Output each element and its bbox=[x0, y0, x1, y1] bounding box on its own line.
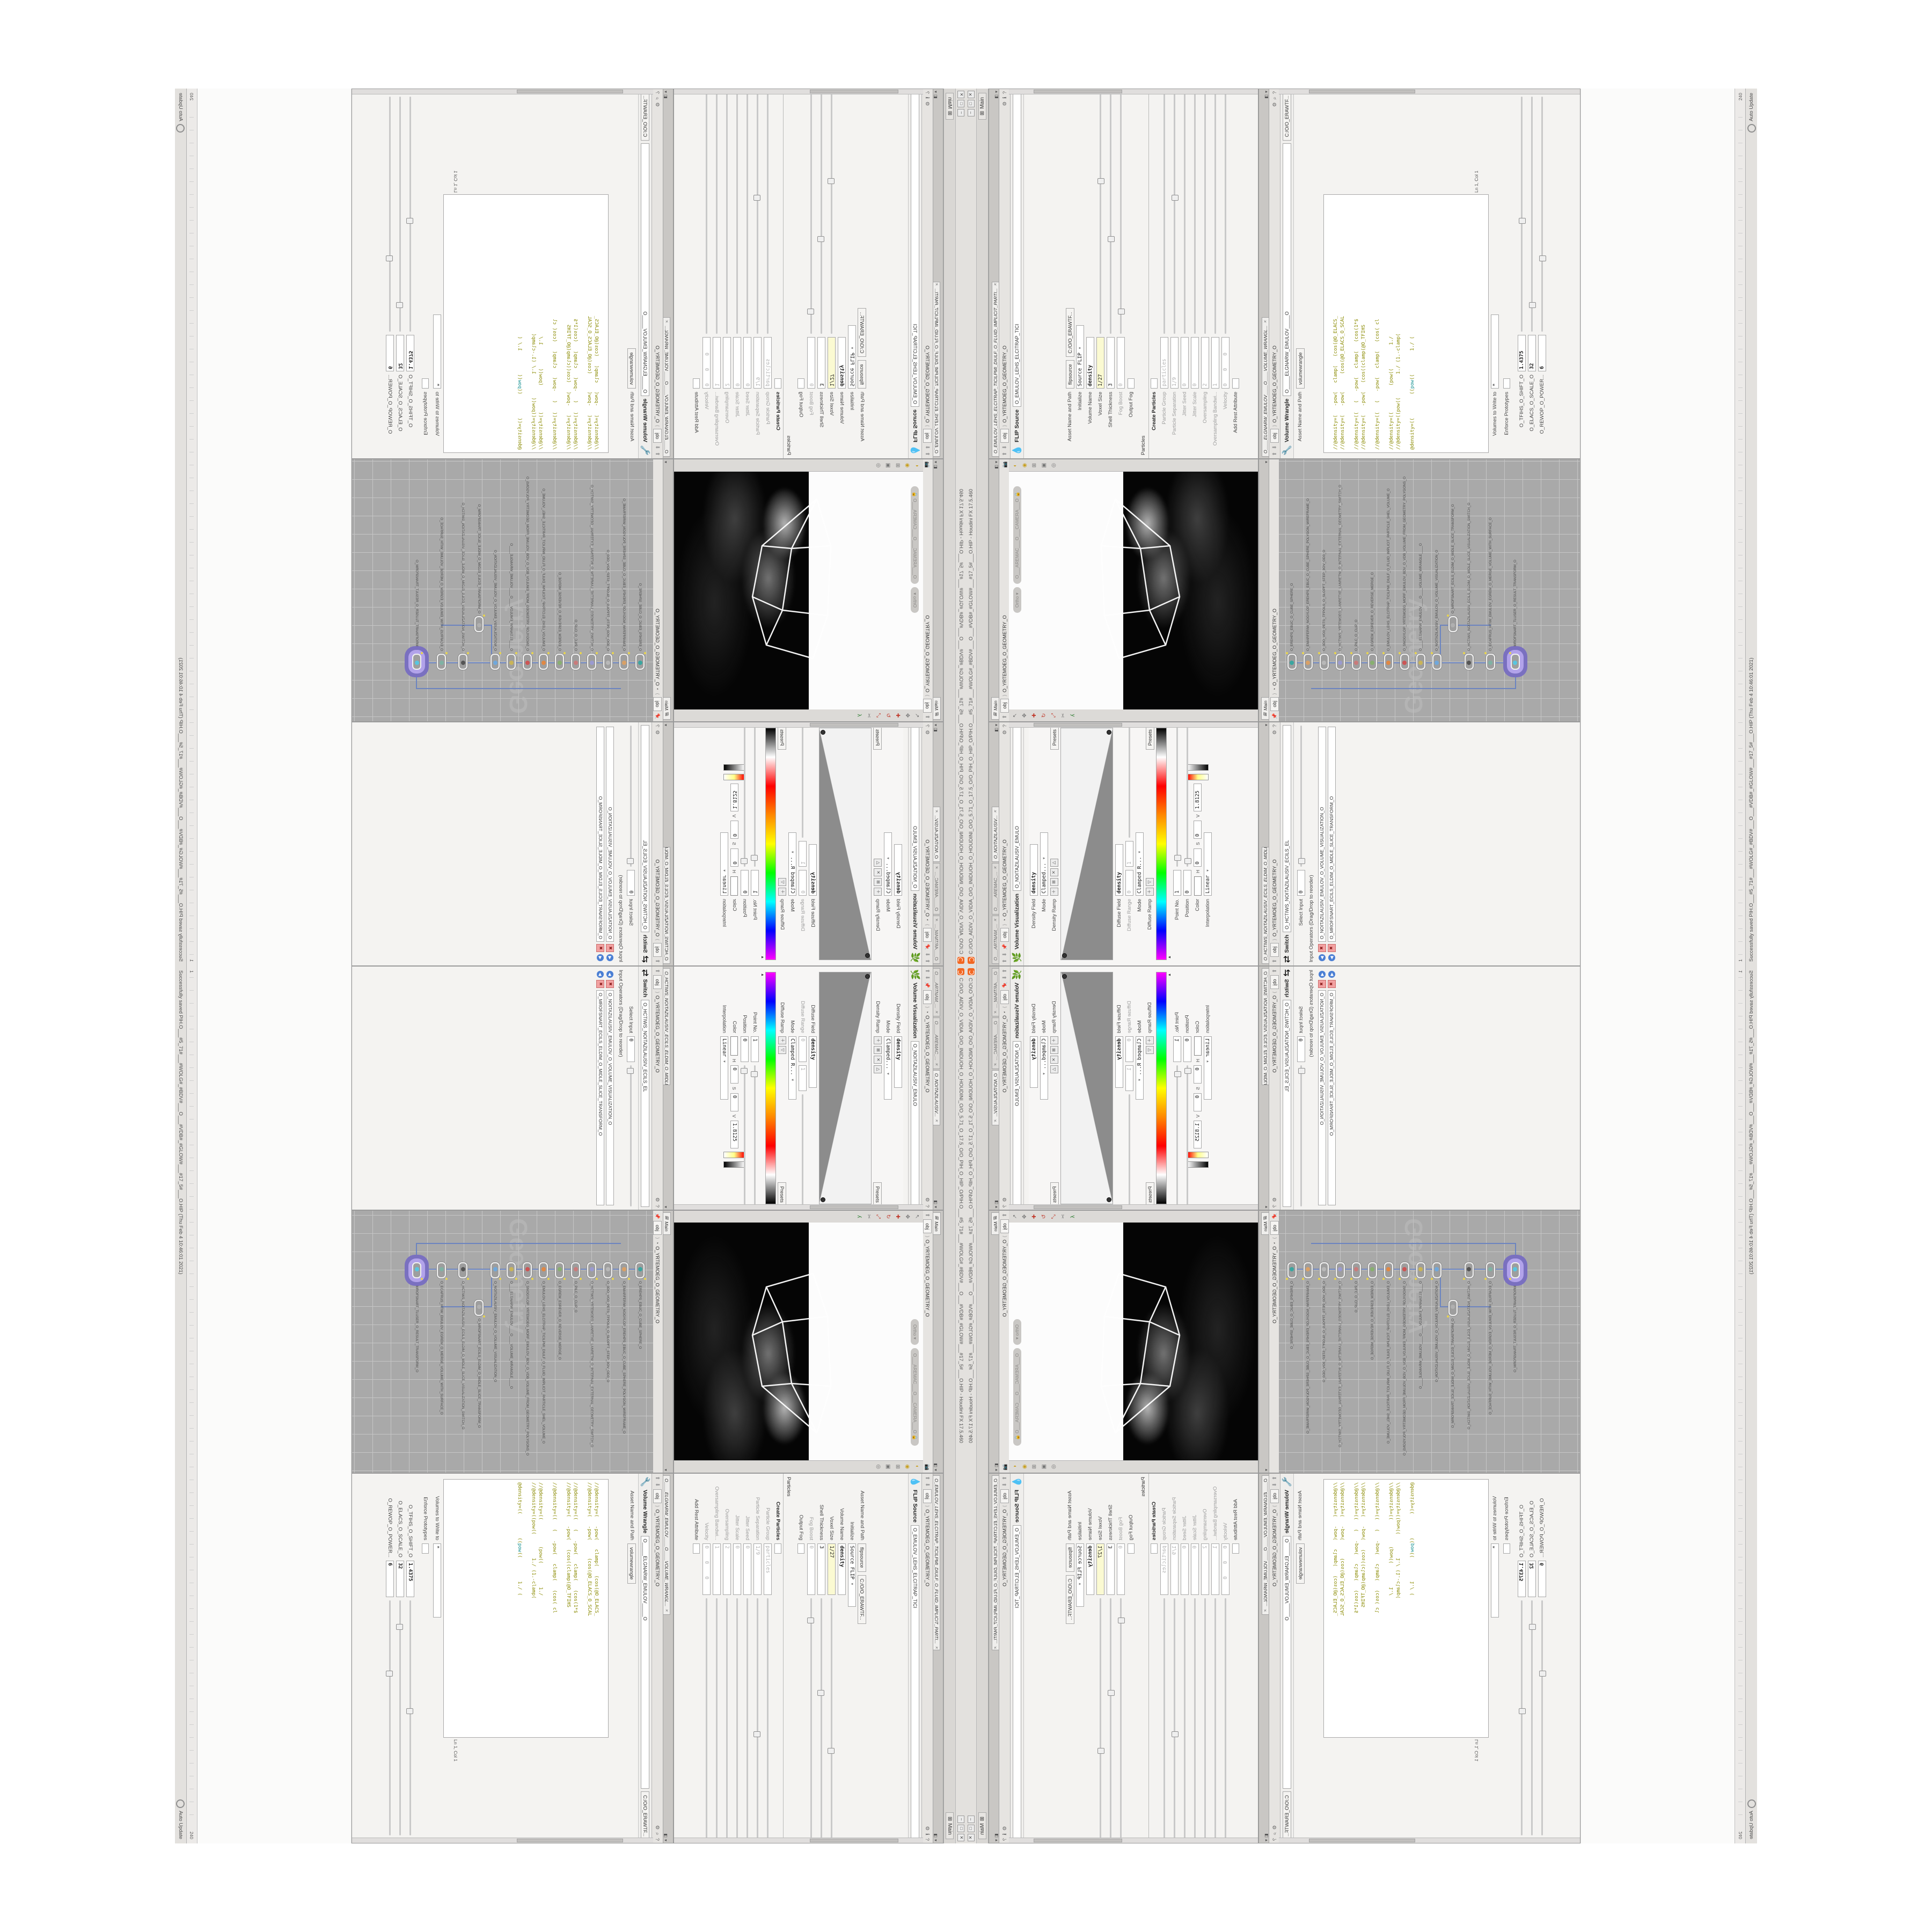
node-body[interactable] bbox=[1448, 1300, 1458, 1316]
nav-down-icon[interactable]: ⬇ bbox=[1002, 975, 1008, 979]
param-row[interactable]: Output Fog bbox=[1126, 1474, 1136, 1843]
color-swatch[interactable] bbox=[731, 1036, 738, 1056]
shading-icon[interactable]: ◐ bbox=[1012, 1465, 1018, 1468]
nav-up-icon[interactable]: ⬆ bbox=[1002, 715, 1008, 719]
update-mode-icon[interactable] bbox=[177, 124, 185, 133]
ramp-point-rail[interactable]: ▲ bbox=[1168, 728, 1172, 960]
diffuse-ramp-widget[interactable] bbox=[765, 728, 776, 960]
diffuse-range-min[interactable]: 0 bbox=[799, 870, 807, 896]
title-bar[interactable]: C:/O/O_AIDIV_O_VIDIA_O/O_INIDUOH_O_HOUDI… bbox=[966, 89, 977, 966]
input-operator-row[interactable]: ◀ ✖ O_NOITAZILAUSIV_EMULOV_O_VOLUME_VISU… bbox=[1318, 971, 1326, 1205]
value-strip[interactable] bbox=[724, 1161, 745, 1168]
vex-code-editor[interactable]: //@density=( -pow( clamp( (cos(@O_ELACS_… bbox=[1323, 194, 1489, 453]
network-node[interactable]: O_EGREM_ESREVER_O_REVERSE_MERGE_O bbox=[1368, 1262, 1377, 1360]
param-row[interactable]: InitializeSource FLIP bbox=[1075, 89, 1085, 458]
nav-down-icon[interactable]: ⬇ bbox=[1272, 445, 1278, 449]
ramp-point-handle[interactable] bbox=[865, 953, 870, 958]
info-icon[interactable]: ℹ bbox=[1002, 1833, 1008, 1835]
param-row[interactable]: Jitter Scale0 bbox=[1190, 1474, 1200, 1843]
help-icon[interactable]: ? bbox=[1002, 724, 1008, 727]
tab-mantra[interactable]: O___ARTNAM_...✕ bbox=[933, 916, 940, 964]
pin-icon[interactable]: 📌 bbox=[655, 713, 661, 719]
lighting-icon[interactable]: ◉ bbox=[904, 1465, 910, 1469]
pane-menu-icon[interactable]: ▾ bbox=[933, 724, 938, 726]
close-icon[interactable]: ✕ bbox=[934, 283, 939, 286]
position-input[interactable]: 0 bbox=[1183, 1036, 1191, 1062]
path-root-chip[interactable]: obj bbox=[653, 697, 662, 711]
tab-mantra[interactable]: O___ARTNAM_...✕ bbox=[933, 968, 940, 1016]
snap-tool-icon[interactable]: ✂ bbox=[1060, 1214, 1066, 1219]
scale-tool-icon[interactable]: ⤢ bbox=[875, 713, 881, 718]
timeline-ticks[interactable] bbox=[190, 105, 194, 955]
delete-input-icon[interactable]: ✖ bbox=[606, 980, 614, 988]
title-bar[interactable]: C:/O/O_AIDIV_O_VIDIA_O/O_INIDUOH_O_HOUDI… bbox=[955, 89, 966, 966]
pin-icon[interactable]: 📌 bbox=[1002, 944, 1008, 950]
node-body[interactable] bbox=[1336, 654, 1345, 670]
asset-chip[interactable]: flipsource bbox=[1066, 1543, 1074, 1572]
node-body[interactable] bbox=[412, 1262, 421, 1278]
param-row[interactable]: InitializeSource FLIP bbox=[1075, 1474, 1085, 1843]
pane-menu-icon[interactable]: ▾ bbox=[933, 1469, 938, 1471]
gear-icon[interactable]: ⚙ bbox=[655, 1825, 661, 1830]
hand-tool-icon[interactable]: ✥ bbox=[904, 713, 910, 718]
node-body[interactable] bbox=[1320, 654, 1329, 670]
node-flag-icon[interactable] bbox=[547, 652, 550, 654]
param-row[interactable]: Velocity0 0 0 bbox=[1220, 89, 1231, 458]
diffuse-field-input[interactable]: density bbox=[809, 1036, 817, 1088]
delete-input-icon[interactable]: ✖ bbox=[596, 944, 604, 952]
param-row[interactable]: Voxel Size1/27 bbox=[1095, 1474, 1106, 1843]
node-flag-icon[interactable] bbox=[563, 652, 566, 654]
minimize-button[interactable]: – bbox=[968, 109, 975, 116]
asset-path-chip[interactable]: C:/O/O_ERAWTF... bbox=[858, 1575, 867, 1624]
rotate-tool-icon[interactable]: ↻ bbox=[1041, 1214, 1047, 1219]
node-body[interactable] bbox=[603, 654, 612, 670]
help-icon[interactable]: ? bbox=[655, 1838, 661, 1841]
ramp-flip-icon[interactable]: ▽ bbox=[778, 878, 786, 886]
display-options-icon[interactable]: ◎ bbox=[1051, 1465, 1057, 1469]
ramp-add-icon[interactable]: ＋ bbox=[874, 1036, 882, 1044]
node-name-field[interactable]: O_NOITAZILAUSIV_EMULO bbox=[911, 725, 919, 891]
node-flag-icon[interactable] bbox=[515, 652, 517, 654]
param-row[interactable]: InitializeSource FLIP bbox=[847, 89, 857, 458]
node-flag-icon[interactable] bbox=[1431, 652, 1433, 654]
ramp-delete-icon[interactable]: ✕ bbox=[1050, 1056, 1058, 1064]
node-flag-icon[interactable] bbox=[644, 652, 646, 654]
param-row[interactable]: Particles bbox=[783, 89, 794, 458]
position-input[interactable]: 0 bbox=[741, 870, 749, 896]
network-node[interactable]: O_HCTIWS_NOITAZILAUSIV_ECILS_ELDIM_O_MID… bbox=[1465, 503, 1474, 670]
node-flag-icon[interactable] bbox=[445, 652, 448, 654]
node-body[interactable] bbox=[1511, 1262, 1520, 1278]
close-button[interactable]: ✕ bbox=[957, 91, 964, 98]
network-node[interactable]: O_NOITAZILAUSIV_EMULOV_O_VOLUME_VISUALIZ… bbox=[491, 1262, 500, 1382]
node-flag-icon[interactable] bbox=[596, 1278, 598, 1280]
nav-up-icon[interactable]: ⬆ bbox=[1002, 969, 1008, 973]
node-body[interactable] bbox=[1368, 1262, 1377, 1278]
pin-icon[interactable]: 📌 bbox=[1002, 982, 1008, 988]
nav-up-icon[interactable]: ⬆ bbox=[1002, 1213, 1008, 1217]
network-node[interactable]: O_EMARFERIW_NOGYLOP_EREHPS_EBUC_O_CUBE_S… bbox=[619, 499, 628, 670]
nav-up-icon[interactable]: ⬆ bbox=[655, 969, 661, 973]
node-flag-icon[interactable] bbox=[1318, 652, 1320, 654]
nav-up-icon[interactable]: ⬆ bbox=[1002, 452, 1008, 456]
node-body[interactable] bbox=[1384, 1262, 1393, 1278]
insert-input-icon[interactable]: ◀ bbox=[1319, 954, 1326, 961]
path-root-chip[interactable]: obj bbox=[1000, 1489, 1009, 1503]
ramp-point-handle[interactable] bbox=[821, 1197, 825, 1202]
node-body[interactable] bbox=[1287, 654, 1297, 670]
maximize-button[interactable]: □ bbox=[957, 100, 964, 107]
param-row[interactable]: Fog Boost0 bbox=[806, 89, 816, 458]
ramp-flip-icon[interactable]: △ bbox=[1050, 1065, 1058, 1073]
tab-switch[interactable]: O_HCTIWS_NOITAZILAUSIV_ECILS_ELDIM_O_MID… bbox=[663, 847, 670, 964]
asset-path-chip[interactable]: C:/O/O_ERAWTF... bbox=[1066, 308, 1074, 357]
ramp-grid-icon[interactable]: ⊞ bbox=[1050, 878, 1058, 886]
tab-camera[interactable]: O____AREMAC_...✕ bbox=[933, 863, 940, 914]
network-node[interactable]: O_EREHPS_EBUC_O_CUBE_SPHERE_O bbox=[1287, 1262, 1297, 1349]
network-node[interactable]: O_HCTIWS_NOITAZILAUSIV_ECILS_ELDIM_O_MID… bbox=[458, 1262, 467, 1429]
gear-icon[interactable]: ⚙ bbox=[655, 1197, 661, 1202]
input-operator-row[interactable]: ◀ ✖ O_NOITAZILAUSIV_EMULOV_O_VOLUME_VISU… bbox=[1318, 727, 1326, 961]
close-icon[interactable]: ✕ bbox=[993, 919, 998, 922]
lighting-icon[interactable]: ◉ bbox=[1022, 1465, 1028, 1469]
close-icon[interactable]: ✕ bbox=[934, 866, 939, 869]
pane-menu-icon[interactable]: ▾ bbox=[1264, 1206, 1269, 1208]
param-row[interactable]: Velocity0 0 0 bbox=[701, 1474, 712, 1843]
param-row[interactable]: Create Particles bbox=[1149, 89, 1159, 458]
nav-down-icon[interactable]: ⬇ bbox=[925, 445, 931, 449]
network-node[interactable]: O_EGREM_ESREVER_O_REVERSE_MERGE_O bbox=[1368, 572, 1377, 670]
tab-network[interactable]: ⊞Main bbox=[663, 1212, 671, 1235]
tab-scene-view[interactable]: ⊞Main bbox=[991, 1212, 999, 1235]
ramp-grid-icon[interactable]: ⊞ bbox=[874, 1046, 882, 1054]
node-name-field[interactable]: O_EMULOV_LEHS_ELCITRAP_TICI bbox=[1013, 1525, 1021, 1840]
node-body[interactable] bbox=[412, 654, 421, 670]
param-row[interactable]: Jitter Scale0 bbox=[732, 1474, 742, 1843]
close-icon[interactable]: ✕ bbox=[993, 1646, 998, 1649]
shading-icon[interactable]: ◐ bbox=[914, 1465, 920, 1468]
density-presets-dropdown[interactable]: Presets bbox=[1050, 1182, 1059, 1206]
tab-scene-view[interactable]: ⊞Main bbox=[933, 1212, 941, 1235]
network-node[interactable]: O_EMARFERIW_NOGYLOP_EREHPS_EBUC_O_CUBE_S… bbox=[619, 1262, 628, 1433]
node-name-field[interactable]: O_____ELGNARW_EMULOV_____O bbox=[1283, 1536, 1291, 1789]
enforce-prototypes-checkbox[interactable] bbox=[1503, 1543, 1510, 1554]
network-node[interactable]: O_ECAFRUS_HTIW_EMULOV_EGREM_O_MERGE_VOLU… bbox=[437, 517, 446, 670]
scrollbar[interactable] bbox=[352, 89, 653, 94]
help-icon[interactable]: ? bbox=[925, 724, 931, 727]
network-node[interactable]: O____ELGNARW_EMULOV____O____VOLUME_WRANG… bbox=[1416, 1262, 1425, 1389]
ramp-delete-icon[interactable]: ✕ bbox=[874, 868, 882, 876]
node-flag-icon[interactable] bbox=[1318, 1278, 1320, 1280]
ramp-flip-icon[interactable]: △ bbox=[874, 1065, 882, 1073]
nav-down-icon[interactable]: ⬇ bbox=[925, 952, 931, 956]
pane-split-icon[interactable]: ◧ bbox=[994, 1463, 999, 1467]
nav-up-icon[interactable]: ⬆ bbox=[655, 452, 661, 456]
tab-volume-wrangle[interactable]: O____ELGNARW_EMULOV____O____VOLUME_WRANG… bbox=[663, 317, 670, 457]
network-canvas[interactable]: Geometry O_EREHPS_EBUC_O_CUBE_SPHERE_O O… bbox=[352, 459, 653, 721]
asset-path-chip[interactable]: C:/O/O_ERAWTF... bbox=[641, 1791, 649, 1840]
nav-down-icon[interactable]: ⬇ bbox=[1002, 952, 1008, 956]
value-input[interactable]: 1.8125 bbox=[1194, 1121, 1202, 1148]
shading-icon[interactable]: ◐ bbox=[914, 464, 920, 467]
gear-icon[interactable]: ⚙ bbox=[1002, 101, 1008, 106]
node-flag-icon[interactable] bbox=[421, 1278, 423, 1280]
param-row[interactable]: Oversampling Bandwi...1 bbox=[712, 1474, 722, 1843]
ortho-pill[interactable]: Ortho ▾ bbox=[911, 587, 919, 613]
param-row[interactable]: Voxel Size1/27 bbox=[826, 1474, 837, 1843]
ramp-add-icon[interactable]: ＋ bbox=[1050, 888, 1058, 896]
info-icon[interactable]: ℹ bbox=[925, 97, 931, 99]
close-icon[interactable]: ✕ bbox=[934, 810, 939, 813]
title-bar[interactable]: C:/O/O_AIDIV_O_VIDIA_O/O_INIDUOH_O_HOUDI… bbox=[955, 966, 966, 1843]
param-row[interactable]: Volume Namedensity bbox=[1085, 1474, 1095, 1843]
auto-update-selector[interactable]: Auto Update bbox=[1748, 1811, 1754, 1839]
node-flag-icon[interactable] bbox=[563, 1278, 566, 1280]
input-operator-field[interactable]: O_NOITAZILAUSIV_EMULOV_O_VOLUME_VISUALIZ… bbox=[606, 990, 614, 1205]
param-row[interactable]: Particles bbox=[1138, 89, 1149, 458]
node-flag-icon[interactable] bbox=[1463, 652, 1465, 654]
desktop-tab-main[interactable]: ⊞Main bbox=[978, 1812, 986, 1839]
node-body[interactable] bbox=[1465, 1262, 1474, 1278]
pane-split-icon[interactable]: ◧ bbox=[994, 1200, 999, 1204]
node-name-field[interactable]: O_____ELGNARW_EMULOV_____O bbox=[641, 143, 649, 396]
node-flag-icon[interactable] bbox=[580, 1278, 582, 1280]
tab-volume-wrangle[interactable]: O____ELGNARW_EMULOV____O____VOLUME_WRANG… bbox=[663, 1475, 670, 1615]
snap-tool-icon[interactable]: ✂ bbox=[1060, 713, 1066, 718]
pane-menu-icon[interactable]: ▾ bbox=[1264, 1839, 1269, 1841]
pane-menu-icon[interactable]: ▾ bbox=[994, 1206, 999, 1208]
nav-up-icon[interactable]: ⬆ bbox=[1002, 1476, 1008, 1480]
axis-tool-icon[interactable]: ʎ bbox=[856, 714, 862, 717]
vex-code-editor[interactable]: //@density=( -pow( clamp( (cos(@O_ELACS_… bbox=[443, 1479, 609, 1738]
snapshot-icon[interactable]: ▣ bbox=[1041, 463, 1047, 467]
asset-chip[interactable]: volumewrangle bbox=[1296, 1543, 1305, 1584]
network-node[interactable]: O_EREHPS_EBUC_O_CUBE_SPHERE_O bbox=[1287, 583, 1297, 670]
path-node[interactable]: O_YRTEMOEG_O_GEOMETRY_O bbox=[655, 1246, 660, 1323]
path-node[interactable]: O_YRTEMOEG_O_GEOMETRY_O bbox=[1272, 346, 1277, 423]
node-flag-icon[interactable] bbox=[467, 1278, 469, 1280]
scale-tool-icon[interactable]: ⤢ bbox=[1051, 713, 1057, 718]
node-body[interactable] bbox=[491, 654, 500, 670]
value-input[interactable]: 1.8125 bbox=[1194, 784, 1202, 811]
volumes-to-write-input[interactable]: * bbox=[433, 314, 441, 389]
diffuse-mode-dropdown[interactable]: Clamped R... bbox=[788, 1036, 796, 1100]
close-icon[interactable]: ✕ bbox=[993, 810, 998, 813]
select-input-field[interactable]: 0 bbox=[627, 1036, 635, 1062]
interpolation-dropdown[interactable]: Linear bbox=[720, 1036, 728, 1100]
node-body[interactable] bbox=[1384, 654, 1393, 670]
hue-input[interactable]: 0 bbox=[730, 848, 738, 867]
node-name-field[interactable]: O_NOITAZILAUSIV_EMULO bbox=[1013, 1041, 1021, 1207]
node-flag-icon[interactable] bbox=[612, 652, 614, 654]
translate-tool-icon[interactable]: ✚ bbox=[1031, 1214, 1037, 1219]
color-swatch[interactable] bbox=[731, 876, 738, 896]
network-node[interactable]: O_3DO_VO3_PETS_TFPOLS_O_SLOPFT_STEP_3OV_… bbox=[603, 550, 612, 670]
grid-toggle-icon[interactable]: ⊞ bbox=[1031, 1465, 1037, 1469]
volumes-to-write-input[interactable]: * bbox=[1491, 314, 1499, 389]
param-row[interactable]: Shell Thickness3 bbox=[816, 89, 826, 458]
path-node[interactable]: O_YRTEMOEG_O_GEOMETRY_O bbox=[1272, 996, 1277, 1073]
spare-param-row[interactable]: O_ELACS_O_SCALE_O32 bbox=[395, 1474, 405, 1839]
diffuse-ramp-widget[interactable] bbox=[1156, 972, 1167, 1204]
help-icon[interactable]: ? bbox=[1272, 1838, 1278, 1841]
spare-param-row[interactable]: O_TFIHS_O_SHIFT_O1.4375 bbox=[1517, 93, 1527, 458]
spare-param-row[interactable]: O_ELACS_O_SCALE_O32 bbox=[1527, 1474, 1537, 1839]
network-node[interactable]: O_EREHPS_EBUC_O_CUBE_SPHERE_O bbox=[635, 1262, 645, 1349]
tab-switch[interactable]: O_HCTIWS_NOITAZILAUSIV_ECILS_ELDIM_O_MID… bbox=[1262, 847, 1269, 964]
insert-input-icon[interactable]: ◀ bbox=[1328, 954, 1335, 961]
spare-param-row[interactable]: O_ELACS_O_SCALE_O32 bbox=[1527, 93, 1537, 458]
network-node[interactable]: O_EMARFERIW_NOGYLOP_EREHPS_EBUC_O_CUBE_S… bbox=[1304, 499, 1313, 670]
node-flag-icon[interactable] bbox=[1366, 652, 1368, 654]
param-row[interactable]: InitializeSource FLIP bbox=[847, 1474, 857, 1843]
position-input[interactable]: 0 bbox=[741, 1036, 749, 1062]
mode-dropdown[interactable]: Clamped... bbox=[884, 1036, 892, 1100]
node-body[interactable] bbox=[1304, 654, 1313, 670]
pane-split-icon[interactable]: ◧ bbox=[994, 465, 999, 469]
ortho-pill[interactable]: Ortho ▾ bbox=[1013, 587, 1021, 613]
param-row[interactable]: Output Fog bbox=[796, 89, 806, 458]
ramp-add-icon[interactable]: ＋ bbox=[778, 888, 786, 896]
ramp-flip-icon[interactable]: ▽ bbox=[1146, 1046, 1154, 1054]
color-swatch[interactable] bbox=[1194, 876, 1202, 896]
node-body[interactable] bbox=[1486, 1262, 1495, 1278]
nav-down-icon[interactable]: ⬇ bbox=[1002, 1482, 1008, 1487]
asset-chip[interactable]: flipsource bbox=[858, 360, 867, 389]
saturation-strip[interactable] bbox=[1187, 1152, 1209, 1158]
translate-tool-icon[interactable]: ✚ bbox=[895, 713, 901, 718]
input-operator-field[interactable]: O_MROFSNART_ECILS_ELDIM_O_MIDLE_SLICE_TR… bbox=[1328, 990, 1336, 1205]
network-node[interactable]: O_PILC_O_CLIP_O bbox=[1352, 1262, 1361, 1313]
network-node[interactable]: O_MROFSNART_TLUSER_O_RESULT_TRANSFORM_O bbox=[1511, 560, 1520, 670]
select-input-field[interactable]: 0 bbox=[627, 870, 635, 896]
param-row[interactable]: Oversampling2 bbox=[1200, 89, 1210, 458]
gear-icon[interactable]: ⚙ bbox=[1002, 730, 1008, 735]
path-root-chip[interactable]: obj bbox=[1000, 1219, 1009, 1233]
param-row[interactable]: Particle Separation1/9 bbox=[1169, 1474, 1180, 1843]
scrollbar[interactable] bbox=[674, 1838, 923, 1843]
saturation-input[interactable]: 0 bbox=[730, 1093, 738, 1111]
search-icon[interactable]: ⌕ bbox=[1272, 1832, 1278, 1835]
network-node[interactable]: O_MROFSNART_TLUSER_O_RESULT_TRANSFORM_O bbox=[412, 560, 421, 670]
network-node[interactable]: O_PILC_O_CLIP_O bbox=[571, 1262, 580, 1313]
network-node[interactable]: O_HCTIWS_YRTEMOEG_LANRETXE_LANRETNI_O_IN… bbox=[587, 1262, 596, 1447]
diffuse-ramp-widget[interactable] bbox=[765, 972, 776, 1204]
help-icon[interactable]: ? bbox=[1272, 1205, 1278, 1207]
close-icon[interactable]: ✕ bbox=[664, 320, 669, 324]
close-icon[interactable]: ✕ bbox=[993, 866, 998, 869]
pin-icon[interactable]: 📌 bbox=[925, 982, 931, 988]
param-row[interactable]: Jitter Seed0 bbox=[1180, 1474, 1190, 1843]
node-flag-icon[interactable] bbox=[1509, 1278, 1511, 1280]
help-icon[interactable]: ? bbox=[655, 91, 661, 94]
tab-camera[interactable]: O____AREMAC_...✕ bbox=[992, 1018, 999, 1069]
info-icon[interactable]: ℹ bbox=[1002, 97, 1008, 99]
param-row[interactable]: Oversampling2 bbox=[722, 89, 732, 458]
select-tool-icon[interactable]: ↖ bbox=[1012, 713, 1018, 718]
scrollbar[interactable] bbox=[1009, 89, 1258, 94]
select-tool-icon[interactable]: ↖ bbox=[914, 1214, 920, 1219]
node-flag-icon[interactable] bbox=[1334, 652, 1336, 654]
node-flag-icon[interactable] bbox=[580, 652, 582, 654]
node-name-field[interactable]: O_EMULOV_LEHS_ELCITRAP_TICI bbox=[911, 92, 919, 407]
ramp-point-rail[interactable]: ▲ bbox=[760, 728, 764, 960]
node-flag-icon[interactable] bbox=[1334, 1278, 1336, 1280]
axis-tool-icon[interactable]: ʎ bbox=[1070, 1216, 1076, 1218]
param-row[interactable]: Particle Groupparticles bbox=[1159, 1474, 1169, 1843]
node-flag-icon[interactable] bbox=[596, 652, 598, 654]
diffuse-presets-dropdown[interactable]: Presets bbox=[1146, 726, 1154, 750]
node-body[interactable] bbox=[523, 654, 532, 670]
node-flag-icon[interactable] bbox=[1447, 614, 1449, 617]
node-name-field[interactable]: O_NOITAZILAUSIV_EMULO bbox=[1013, 725, 1021, 891]
close-icon[interactable]: ✕ bbox=[993, 1063, 998, 1066]
rotate-tool-icon[interactable]: ↻ bbox=[885, 1214, 891, 1219]
pane-split-icon[interactable]: ◧ bbox=[1264, 1833, 1269, 1838]
node-body[interactable] bbox=[603, 1262, 612, 1278]
pane-menu-icon[interactable]: ▾ bbox=[663, 1469, 668, 1471]
node-body[interactable] bbox=[1287, 1262, 1297, 1278]
param-row[interactable]: Volume Namedensity bbox=[837, 89, 847, 458]
node-body[interactable] bbox=[1304, 1262, 1313, 1278]
network-node[interactable]: O_ECAFRUS_HTIW_EMULOV_EGREM_O_MERGE_VOLU… bbox=[437, 1262, 446, 1415]
node-flag-icon[interactable] bbox=[499, 1278, 501, 1280]
node-body[interactable] bbox=[619, 1262, 628, 1278]
path-root-chip[interactable]: obj bbox=[653, 975, 662, 989]
path-node[interactable]: O_YRTEMOEG_O_GEOMETRY_O bbox=[1002, 346, 1007, 423]
hue-input[interactable]: 0 bbox=[1194, 848, 1202, 867]
tab-network[interactable]: ⊞Main bbox=[1261, 1212, 1269, 1235]
input-operator-row[interactable]: ◀ ✖ O_MROFSNART_ECILS_ELDIM_O_MIDLE_SLIC… bbox=[1328, 971, 1336, 1205]
diffuse-field-input[interactable]: density bbox=[809, 844, 817, 896]
color-swatch[interactable] bbox=[1194, 1036, 1202, 1056]
path-root-chip[interactable]: obj bbox=[1270, 943, 1279, 957]
node-body[interactable] bbox=[635, 1262, 645, 1278]
param-row[interactable]: Particle Separation1/9 bbox=[752, 1474, 763, 1843]
diffuse-presets-dropdown[interactable]: Presets bbox=[778, 1182, 787, 1206]
select-tool-icon[interactable]: ↖ bbox=[914, 713, 920, 718]
close-icon[interactable]: ✕ bbox=[934, 919, 939, 922]
path-node[interactable]: O_YRTEMOEG_O_GEOMETRY_O bbox=[925, 1240, 930, 1317]
gear-icon[interactable]: ⚙ bbox=[1002, 1826, 1008, 1831]
value-input[interactable]: 1.8125 bbox=[730, 1121, 738, 1148]
scrollbar[interactable] bbox=[674, 722, 923, 728]
path-node[interactable]: O_YRTEMOEG_O_GEOMETRY_O bbox=[1272, 1509, 1277, 1586]
param-row[interactable]: Add Rest Attribute bbox=[691, 89, 701, 458]
param-row[interactable]: Particles bbox=[1138, 1474, 1149, 1843]
axis-tool-icon[interactable]: ʎ bbox=[856, 1216, 862, 1218]
pane-menu-icon[interactable]: ▾ bbox=[933, 461, 938, 463]
node-body[interactable] bbox=[474, 1300, 484, 1316]
node-name-field[interactable]: O_HCTIWS_NOITAZILAUSIV_ECILS_EL bbox=[641, 1000, 649, 1207]
node-flag-icon[interactable] bbox=[1366, 1278, 1368, 1280]
close-button[interactable]: ✕ bbox=[968, 1834, 975, 1841]
pin-icon[interactable]: 📌 bbox=[925, 944, 931, 950]
point-no-input[interactable]: 1 bbox=[751, 1036, 759, 1062]
param-row[interactable]: Shell Thickness3 bbox=[816, 1474, 826, 1843]
help-icon[interactable]: ? bbox=[655, 1205, 661, 1207]
ramp-point-rail[interactable]: ▲ bbox=[760, 972, 764, 1204]
param-row[interactable]: Jitter Seed0 bbox=[742, 1474, 752, 1843]
node-body[interactable] bbox=[555, 1262, 564, 1278]
node-flag-icon[interactable] bbox=[1350, 652, 1352, 654]
density-presets-dropdown[interactable]: Presets bbox=[1050, 726, 1059, 750]
node-body[interactable] bbox=[555, 654, 564, 670]
param-row[interactable]: Particle Separation1/9 bbox=[1169, 89, 1180, 458]
network-node[interactable]: O____ELGNARW_EMULOV____O____VOLUME_WRANG… bbox=[507, 543, 516, 670]
asset-path-chip[interactable]: C:/O/O_ERAWTF... bbox=[1283, 92, 1291, 141]
